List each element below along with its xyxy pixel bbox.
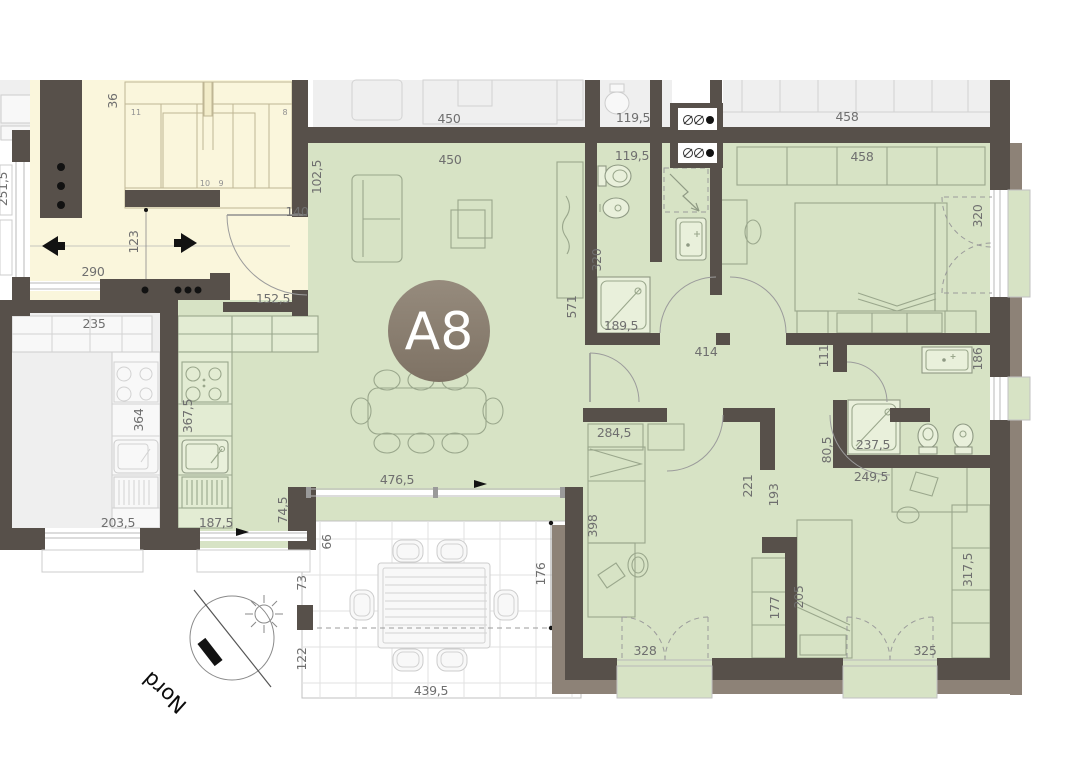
dim-neighbor-kitchen-width: 235 [83, 316, 106, 331]
dim-passage1: 221 [740, 475, 755, 498]
dim-kitchen-pass-wall: 152,5 [256, 291, 290, 306]
dim-living-width: 450 [439, 152, 462, 167]
dim-corridor-stub: 111 [816, 345, 831, 368]
dim-terrace-seg1: 73 [294, 575, 309, 590]
dim-shower2: 237,5 [856, 437, 890, 452]
dim-terrace-depth: 176 [533, 562, 548, 585]
dim-corridor-width: 414 [695, 344, 718, 359]
stair-step-8: 8 [282, 108, 287, 117]
dim-neighbor-kitchen-window: 203,5 [101, 515, 135, 530]
dim-living-length: 571 [564, 296, 579, 319]
dim-terrace-seg2: 122 [294, 648, 309, 671]
dim-bath1-width: 119,5 [615, 148, 649, 163]
dim-master-window: 320 [970, 204, 985, 227]
unit-badge: A8 [388, 280, 490, 382]
dim-bath2-side: 80,5 [819, 437, 834, 464]
dim-bath1-length: 320 [589, 248, 604, 271]
terrace [302, 521, 581, 698]
bidet-2 [953, 424, 973, 448]
dim-passage2: 193 [766, 484, 781, 507]
dim-landing-width: 290 [82, 264, 105, 279]
dim-bedroom2-length: 398 [585, 514, 600, 537]
bidet-1 [603, 198, 629, 218]
dim-entry-door: 140 [286, 204, 309, 219]
stair-step-9: 9 [218, 179, 223, 188]
dim-terrace-width: 439,5 [414, 683, 448, 698]
stair-step-11: 11 [131, 108, 141, 117]
dim-neighbor-bath-width: 119,5 [616, 110, 650, 125]
dim-wardrobe1: 177 [767, 597, 782, 620]
floor-plan-page: 11 8 10 9 [0, 0, 1076, 780]
floor-plan-a8: 11 8 10 9 [0, 0, 1076, 780]
dim-neighbor-kitchen-depth: 364 [131, 408, 146, 431]
dim-kitchen-window: 187,5 [199, 515, 233, 530]
dim-neighbor-living-width: 450 [438, 111, 461, 126]
dim-bath2-window: 186 [970, 347, 985, 370]
vanity-2 [922, 347, 972, 373]
dim-kitchen-jog: 74,5 [275, 497, 290, 524]
dim-stair-width: 36 [105, 93, 120, 109]
dim-terrace-band: 66 [319, 534, 334, 550]
dim-neighbor-hall-width: 458 [836, 109, 859, 124]
kitchen-sink [182, 440, 228, 473]
landing-west-window [12, 162, 30, 277]
dim-living-glass-width: 476,5 [380, 472, 414, 487]
ventilation-shafts [670, 103, 723, 168]
dim-kitchen-depth: 367,5 [180, 399, 195, 433]
unit-label: A8 [405, 302, 474, 362]
stair-step-10: 10 [200, 179, 210, 188]
dim-master-width: 458 [851, 149, 874, 164]
dim-bedroom2-window: 328 [634, 643, 657, 658]
outdoor-table [378, 563, 490, 648]
dim-wardrobe3: 317,5 [960, 553, 975, 587]
dim-entry-wall: 102,5 [309, 160, 324, 194]
stair-newel [204, 82, 212, 116]
dishwasher [182, 477, 228, 508]
dim-bedroom2-width: 284,5 [597, 425, 631, 440]
dim-bedroom3-window: 325 [914, 643, 937, 658]
dim-neighbor-left-width: 251,5 [0, 172, 10, 206]
dim-wardrobe2: 205 [791, 586, 806, 609]
dim-shower1: 189,5 [604, 318, 638, 333]
dim-landing-depth: 123 [126, 231, 141, 254]
dim-bath2-width: 249,5 [854, 469, 888, 484]
